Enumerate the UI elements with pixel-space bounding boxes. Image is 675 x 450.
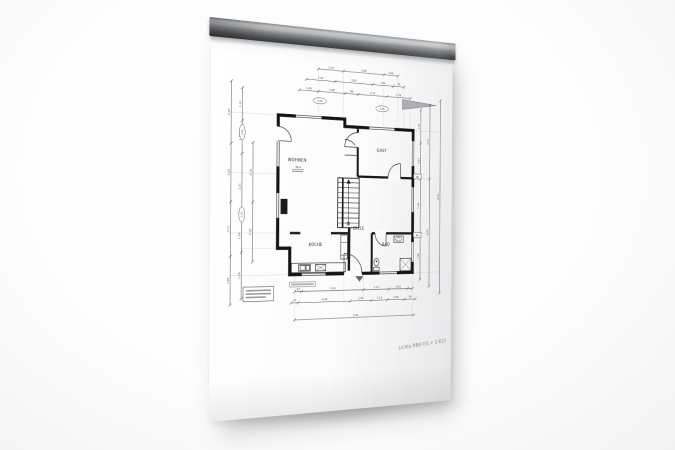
dimension-value: 1,26 [306, 86, 312, 90]
dimension-value: 1,51 [358, 296, 364, 300]
dimension-value: 4,49 [426, 229, 429, 235]
dimension-value: 2,63 [351, 79, 357, 83]
dimension-chain [241, 88, 242, 299]
dimension-value: 1,88 [329, 88, 335, 92]
dimension-value: 2,11 [226, 226, 230, 233]
dimension-value: 2,18 [249, 169, 253, 176]
dimension-value: 2,38 [417, 203, 420, 209]
room-area-block [292, 169, 304, 172]
windows [274, 112, 415, 278]
dimension-value: 76 [408, 295, 411, 299]
dimension-value: 1,76 [237, 272, 241, 279]
dimension-value: 1,76 [396, 93, 401, 97]
sheet-annotation: Lichte RBH EG + 2.625 [398, 338, 446, 351]
oval-dimension-value: 2,51 [240, 211, 244, 217]
dimension-value: 1,88 [416, 253, 419, 259]
dimension-value: 1,51 [380, 81, 385, 85]
dimension-value: 88 [350, 89, 353, 93]
room-label-bad: BAD [382, 242, 390, 247]
sill-height-value: 86 [416, 233, 419, 237]
kitchen-fixtures [291, 235, 347, 273]
dimension-value: 76 [397, 82, 400, 86]
dimension-value: 2,01 [318, 76, 324, 80]
dimension-value: 8,36 [436, 194, 439, 200]
dimension-value: 1,26 [237, 232, 241, 239]
dimension-value: 3,49 [322, 297, 328, 301]
room-label-gast: GAST [377, 148, 387, 153]
dimension-value: 9,41 [353, 313, 359, 317]
sill-height-value: 86 [416, 175, 419, 179]
dimension-value: 2,26 [227, 169, 231, 176]
dimension-value: 1,01 [417, 123, 420, 129]
dimension-value: 1,51 [417, 158, 420, 164]
dimension-value: 5,00 [330, 286, 336, 290]
room-label-diele: DIELE [353, 226, 364, 231]
room-area-value: 38,4 [295, 165, 301, 169]
dimension-value: 1,11 [238, 100, 242, 107]
dimension-value: 1,89 [226, 277, 230, 284]
dimension-value: 2,13 [370, 91, 375, 95]
dimension-chain [318, 69, 398, 76]
room-label-wohnen: WOHNEN [288, 157, 307, 163]
bathroom-fixtures [374, 236, 411, 271]
dimension-chain [299, 90, 410, 98]
dimension-value: 2,42 [396, 284, 401, 288]
note-box [243, 282, 315, 302]
room-label-kueche: KÜCHE [309, 242, 323, 247]
dimension-value: 17 [293, 298, 296, 302]
entrance-step-marker [355, 276, 363, 282]
dimension-value: 2,88 [361, 68, 367, 72]
floor-plan-drawing: 1,762,881,012,012,631,51761,261,88882,13… [209, 24, 453, 422]
oval-dimension-value: 2,51 [317, 99, 323, 103]
dimension-value: 2,18 [248, 229, 252, 236]
staircase [338, 178, 360, 228]
dimension-value: 1,13 [377, 296, 382, 300]
dimension-value: 1,13 [374, 285, 379, 289]
dimension-value: 1,26 [393, 295, 398, 299]
outer-walls [277, 115, 413, 275]
product-photo-scene: 1,762,881,012,012,631,51761,261,88882,13… [0, 0, 675, 450]
dimension-value: 2,43 [227, 108, 231, 115]
oval-dimension-value: 2,38 [380, 107, 385, 111]
dimension-chain [420, 110, 421, 280]
floor-plan-sheet: 1,762,881,012,012,631,51761,261,88882,13… [209, 24, 453, 422]
dimension-value: 2,51 [238, 183, 242, 190]
dimension-value: 3,13 [426, 139, 429, 145]
inner-walls [290, 123, 414, 274]
dimension-value: 1,01 [388, 71, 393, 75]
dimension-value: 24 [297, 287, 300, 291]
direction-wedge [402, 100, 436, 112]
dimension-chain [439, 101, 440, 293]
dimension-value: 1,76 [328, 65, 334, 69]
oval-dimension-value: 2,62 [240, 129, 244, 135]
dimension-chain [295, 288, 412, 291]
dimension-chain [429, 105, 430, 286]
dimension-chain [291, 299, 415, 303]
chimney-block [279, 199, 287, 214]
